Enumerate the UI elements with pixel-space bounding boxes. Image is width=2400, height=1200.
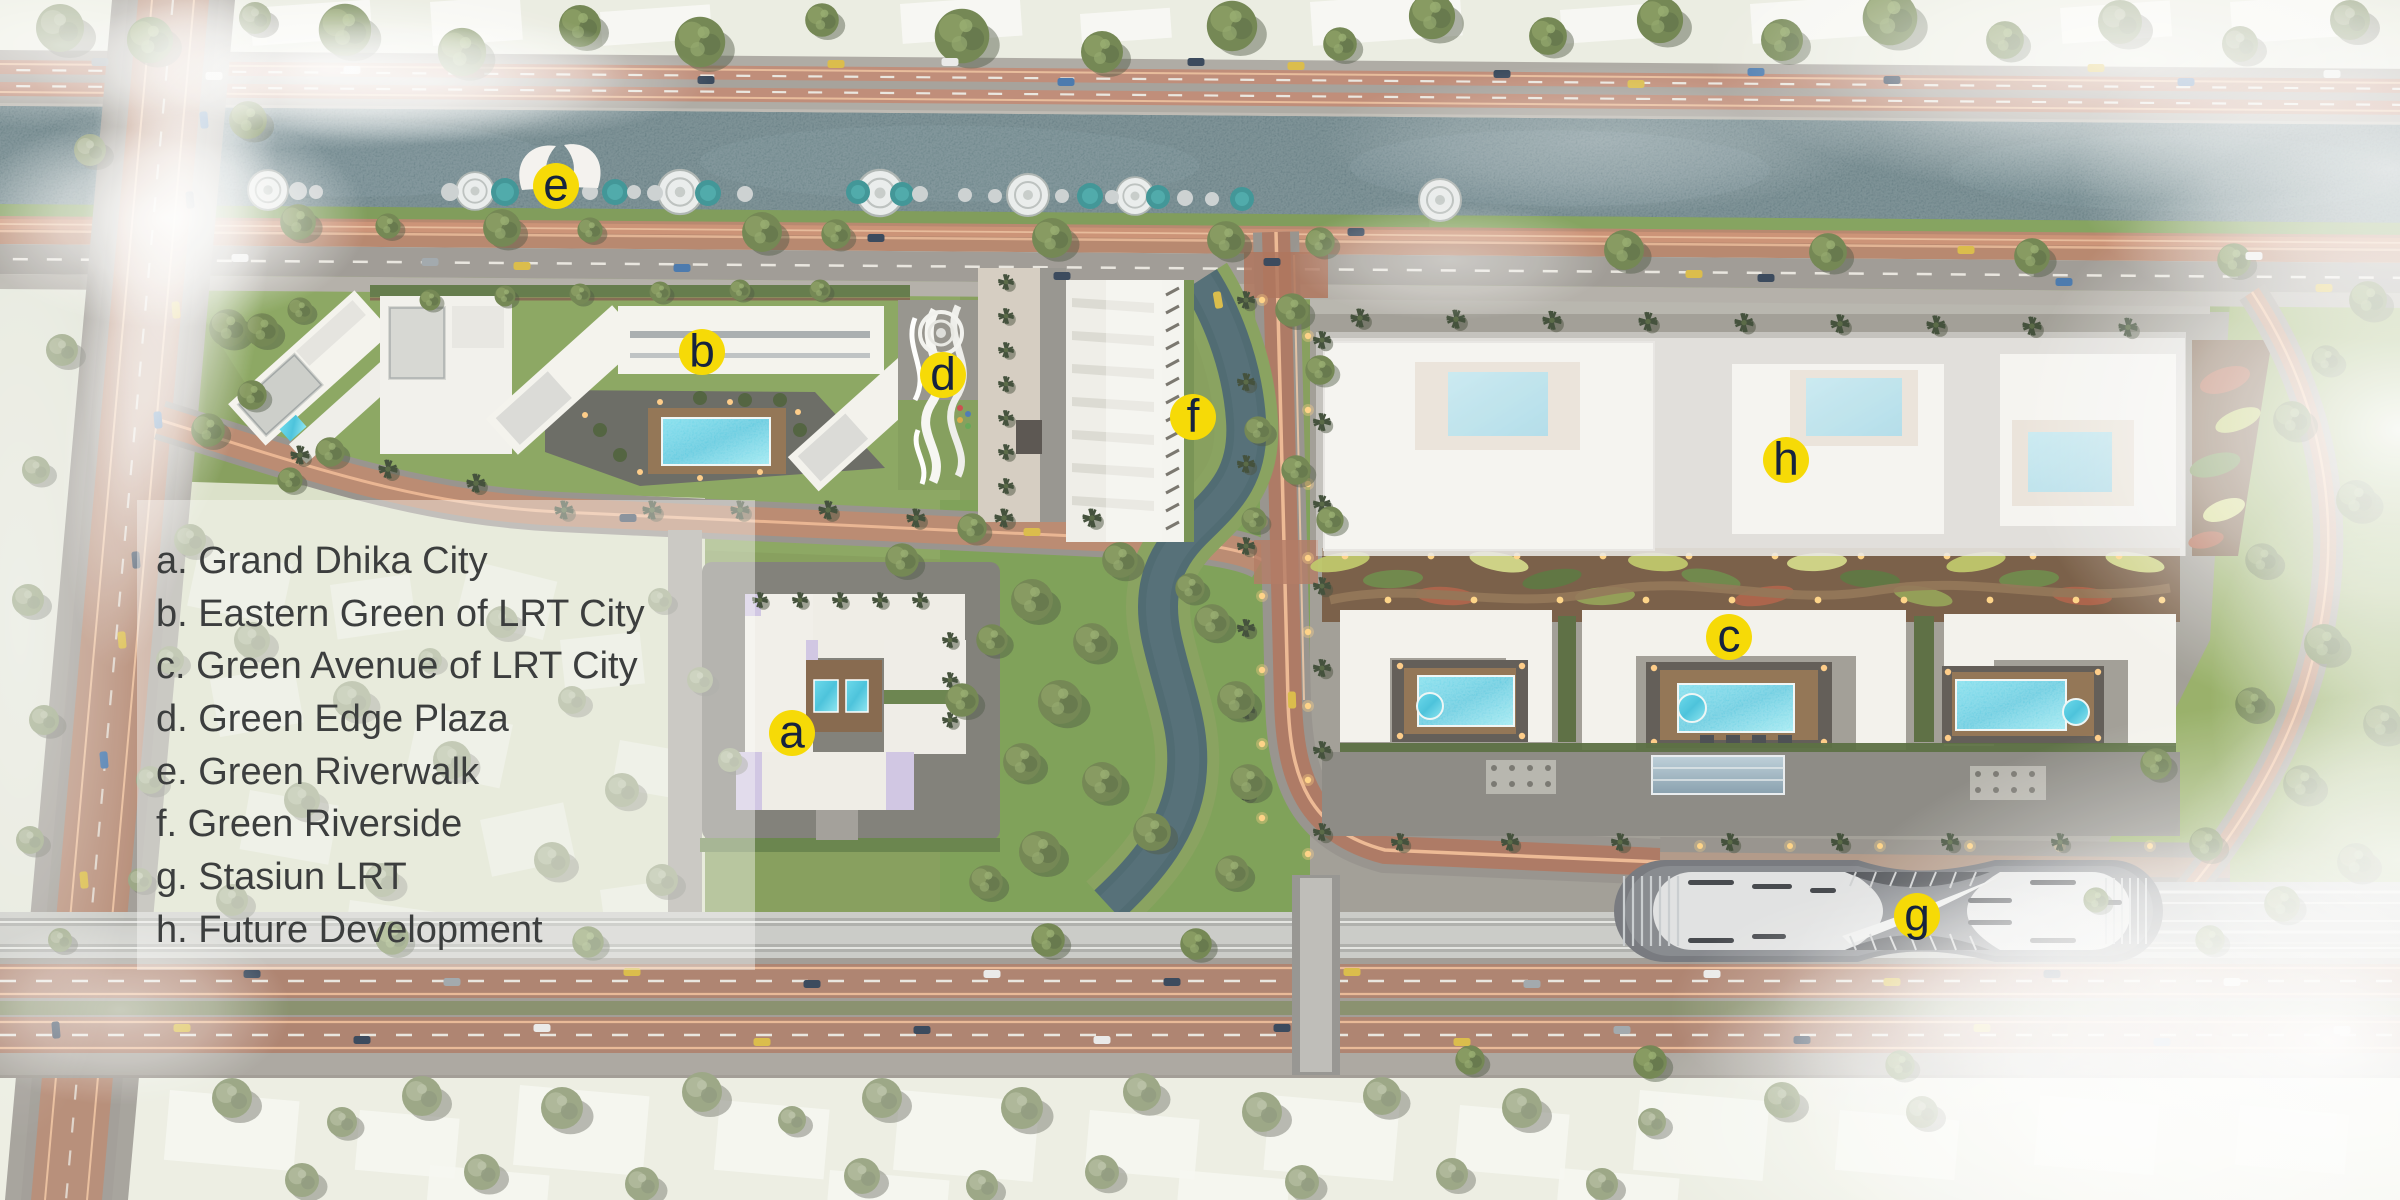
- svg-text:h: h: [1773, 432, 1799, 484]
- svg-text:b: b: [689, 324, 715, 376]
- svg-text:f: f: [1187, 389, 1200, 441]
- svg-text:e: e: [543, 158, 569, 210]
- svg-text:d. Green Edge Plaza: d. Green Edge Plaza: [156, 698, 510, 740]
- svg-text:f. Green Riverside: f. Green Riverside: [156, 803, 462, 845]
- svg-text:b. Eastern Green of LRT City: b. Eastern Green of LRT City: [156, 593, 645, 635]
- svg-text:c: c: [1718, 609, 1741, 661]
- svg-text:g. Stasiun LRT: g. Stasiun LRT: [156, 856, 407, 898]
- svg-text:h. Future Development: h. Future Development: [156, 909, 543, 951]
- svg-text:g: g: [1904, 888, 1930, 940]
- svg-text:c. Green Avenue of LRT City: c. Green Avenue of LRT City: [156, 645, 638, 687]
- svg-text:a. Grand Dhika City: a. Grand Dhika City: [156, 540, 488, 582]
- svg-text:a: a: [779, 705, 805, 757]
- svg-text:d: d: [930, 347, 956, 399]
- svg-text:e. Green Riverwalk: e. Green Riverwalk: [156, 751, 480, 793]
